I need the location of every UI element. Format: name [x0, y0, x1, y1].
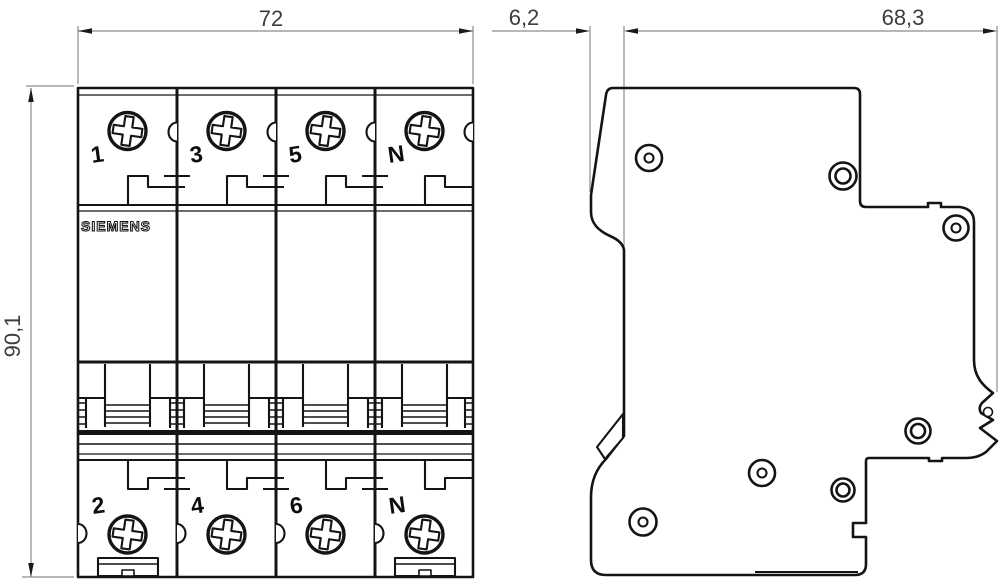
dimension-depth: 68,3	[624, 5, 997, 392]
screw-terminal-n-top	[406, 113, 443, 150]
dimension-width-label: 72	[259, 6, 283, 31]
screw-terminal-n-bottom	[406, 516, 443, 553]
screw-terminal-2	[109, 516, 146, 553]
case-rivets	[630, 145, 969, 536]
front-view: SIEMENS 1 3 5 N	[78, 88, 473, 577]
screw-terminal-4	[208, 516, 245, 553]
mounting-foot-left	[98, 558, 158, 576]
dimension-height-label: 90,1	[0, 315, 25, 358]
brand-logo: SIEMENS	[81, 218, 151, 234]
technical-drawing-canvas: 72 90,1 6,2 68,3	[0, 0, 1000, 584]
din-clip-detail	[984, 408, 993, 417]
dimension-depth-label: 68,3	[882, 5, 925, 30]
screw-terminal-6	[307, 516, 344, 553]
screw-terminal-5	[307, 113, 344, 150]
side-toggle-lever	[597, 414, 623, 459]
common-trip-bar	[78, 430, 473, 435]
screw-terminal-3	[208, 113, 245, 150]
dimension-din-offset-label: 6,2	[509, 5, 540, 30]
side-view	[591, 88, 997, 575]
dimension-height: 90,1	[0, 86, 74, 577]
screw-terminal-1	[109, 113, 146, 150]
dimension-din-offset: 6,2	[492, 5, 624, 250]
circuit-breaker-dimension-drawing: 72 90,1 6,2 68,3	[0, 0, 1000, 584]
mounting-foot-right	[395, 558, 455, 576]
dimension-width: 72	[78, 6, 473, 84]
